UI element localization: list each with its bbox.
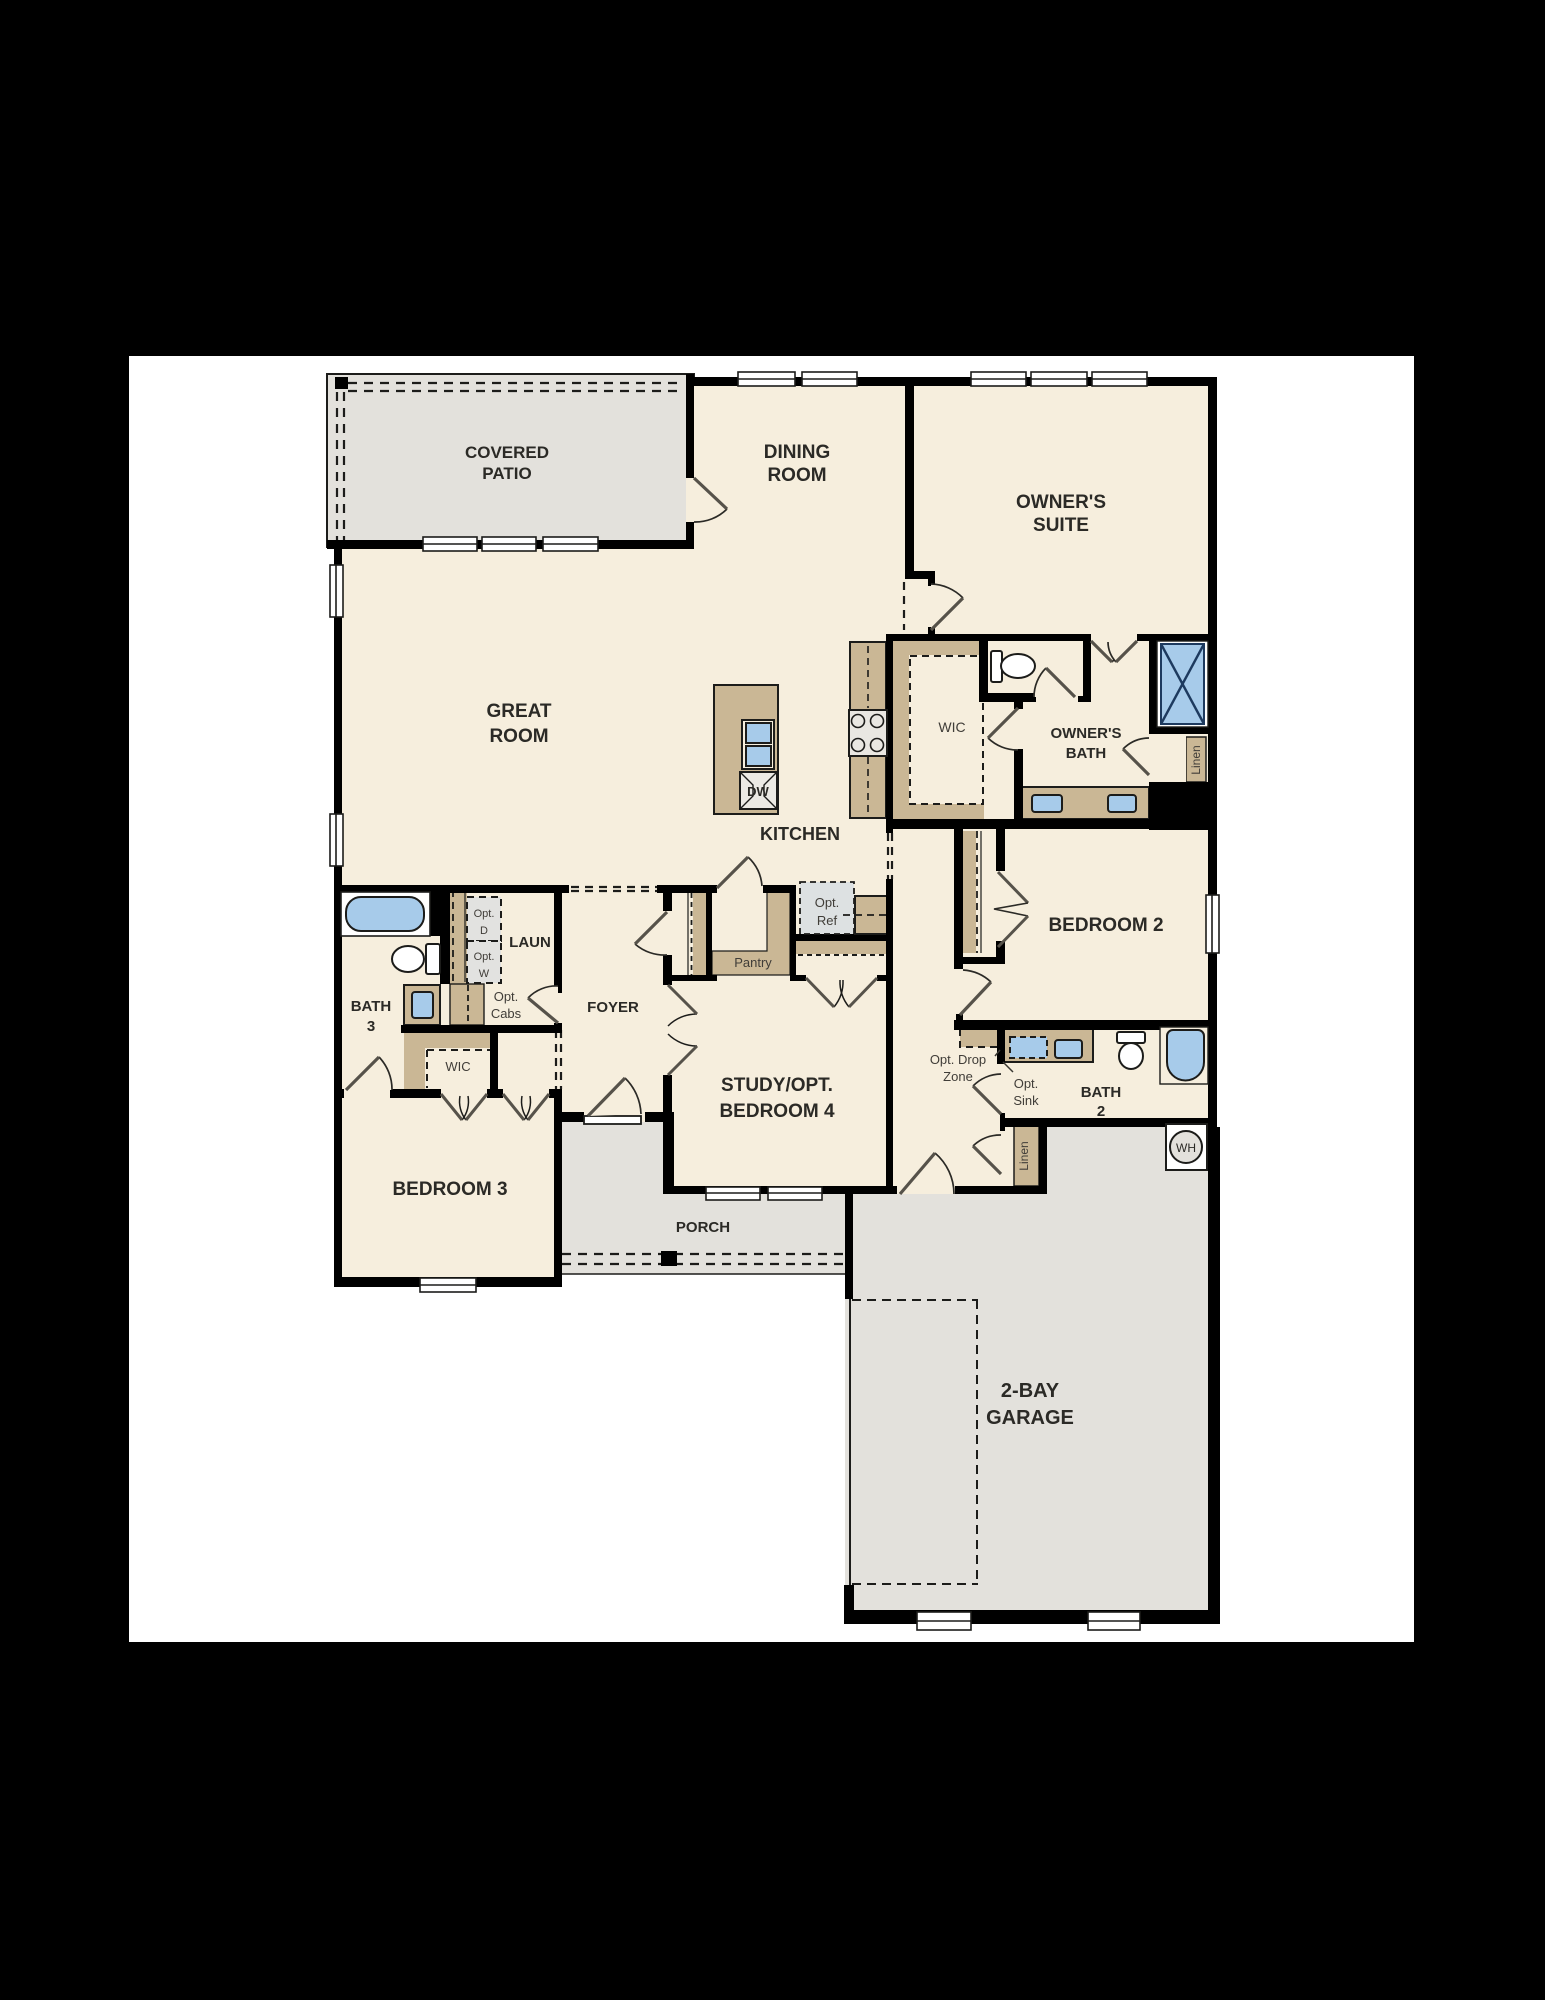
svg-text:ROOM: ROOM [767, 465, 826, 486]
svg-text:WH: WH [1176, 1141, 1196, 1155]
svg-text:DW: DW [747, 784, 769, 799]
svg-text:Cabs: Cabs [491, 1006, 522, 1021]
svg-text:COVERED: COVERED [465, 443, 549, 462]
svg-text:GARAGE: GARAGE [986, 1407, 1074, 1429]
svg-text:ROOM: ROOM [489, 726, 548, 747]
svg-text:Opt.: Opt. [474, 908, 495, 920]
svg-text:Opt.: Opt. [1014, 1076, 1039, 1091]
svg-text:OWNER'S: OWNER'S [1050, 725, 1121, 742]
svg-text:WIC: WIC [445, 1059, 470, 1074]
svg-text:BATH: BATH [1066, 745, 1107, 762]
svg-text:D: D [480, 925, 488, 937]
svg-text:STUDY/OPT.: STUDY/OPT. [721, 1075, 833, 1096]
svg-text:PORCH: PORCH [676, 1219, 730, 1236]
svg-text:KITCHEN: KITCHEN [760, 824, 840, 844]
svg-text:WIC: WIC [938, 719, 965, 735]
svg-text:BATH: BATH [351, 998, 392, 1015]
svg-text:Zone: Zone [943, 1069, 973, 1084]
svg-text:BATH: BATH [1081, 1084, 1122, 1101]
svg-text:Ref: Ref [817, 913, 838, 928]
svg-text:Opt.: Opt. [815, 895, 840, 910]
svg-text:BEDROOM 3: BEDROOM 3 [392, 1179, 507, 1200]
svg-text:2: 2 [1097, 1103, 1105, 1120]
svg-text:Linen: Linen [1189, 745, 1203, 774]
svg-text:Opt.: Opt. [474, 951, 495, 963]
svg-text:FOYER: FOYER [587, 999, 639, 1016]
svg-text:Opt. Drop: Opt. Drop [930, 1052, 986, 1067]
svg-text:Linen: Linen [1017, 1141, 1031, 1170]
svg-text:GREAT: GREAT [486, 701, 551, 722]
svg-text:LAUN: LAUN [509, 934, 551, 951]
svg-text:BEDROOM 4: BEDROOM 4 [719, 1101, 835, 1122]
svg-text:Opt.: Opt. [494, 989, 519, 1004]
svg-text:SUITE: SUITE [1033, 515, 1089, 536]
svg-text:Sink: Sink [1013, 1093, 1039, 1108]
svg-text:DINING: DINING [764, 442, 831, 463]
svg-text:Pantry: Pantry [734, 955, 772, 970]
svg-text:3: 3 [367, 1018, 375, 1035]
svg-text:PATIO: PATIO [482, 464, 531, 483]
svg-text:BEDROOM 2: BEDROOM 2 [1048, 915, 1163, 936]
svg-text:2-BAY: 2-BAY [1001, 1380, 1060, 1402]
svg-text:OWNER'S: OWNER'S [1016, 492, 1106, 513]
svg-text:W: W [479, 968, 490, 980]
